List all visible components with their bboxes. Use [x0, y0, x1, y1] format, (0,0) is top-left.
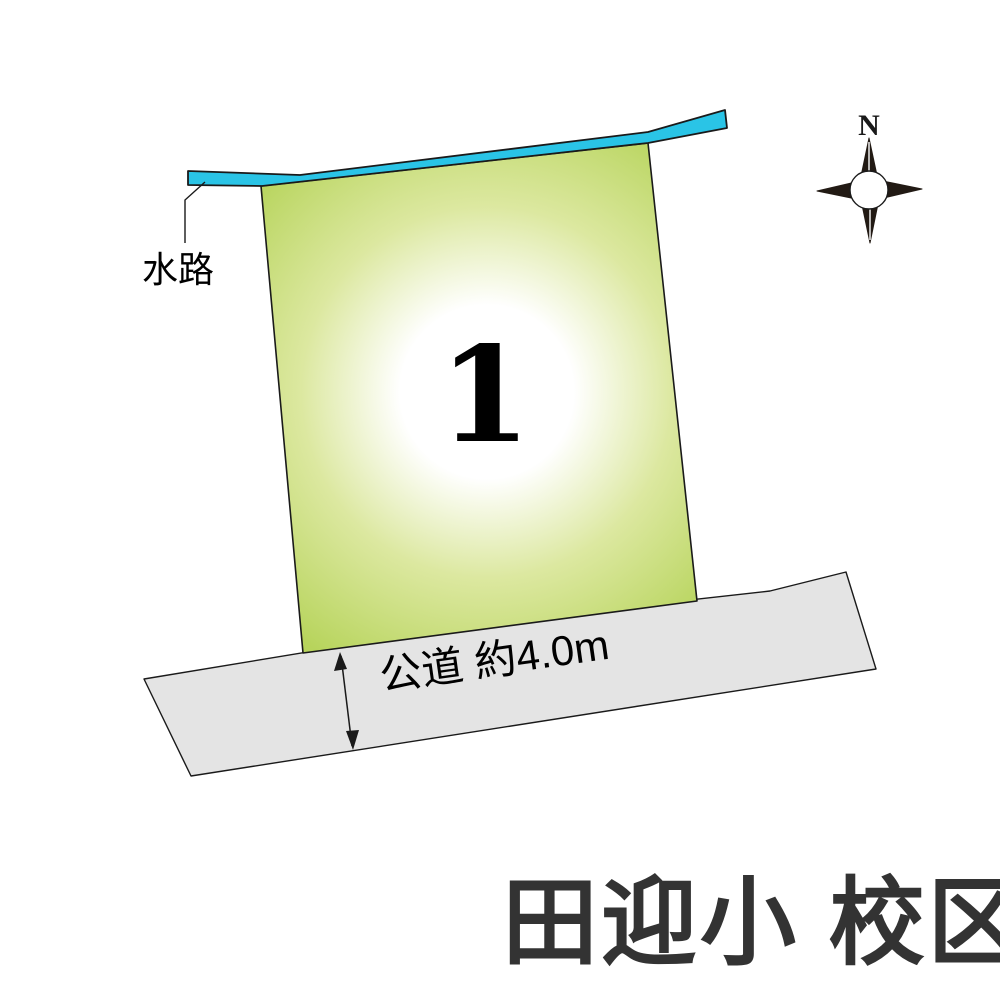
site-plan: 水路 1 公道 約4.0m 田迎小 校区 N	[0, 0, 1000, 1000]
lot-number: 1	[425, 330, 545, 462]
waterway-leader-line	[185, 182, 205, 243]
compass-rose	[817, 138, 922, 243]
compass-north-label: N	[851, 111, 887, 141]
school-district-label: 田迎小 校区	[502, 876, 1000, 972]
compass-circle	[850, 171, 888, 209]
site-plan-drawing	[0, 0, 1000, 1000]
waterway-label: 水路	[142, 252, 214, 288]
